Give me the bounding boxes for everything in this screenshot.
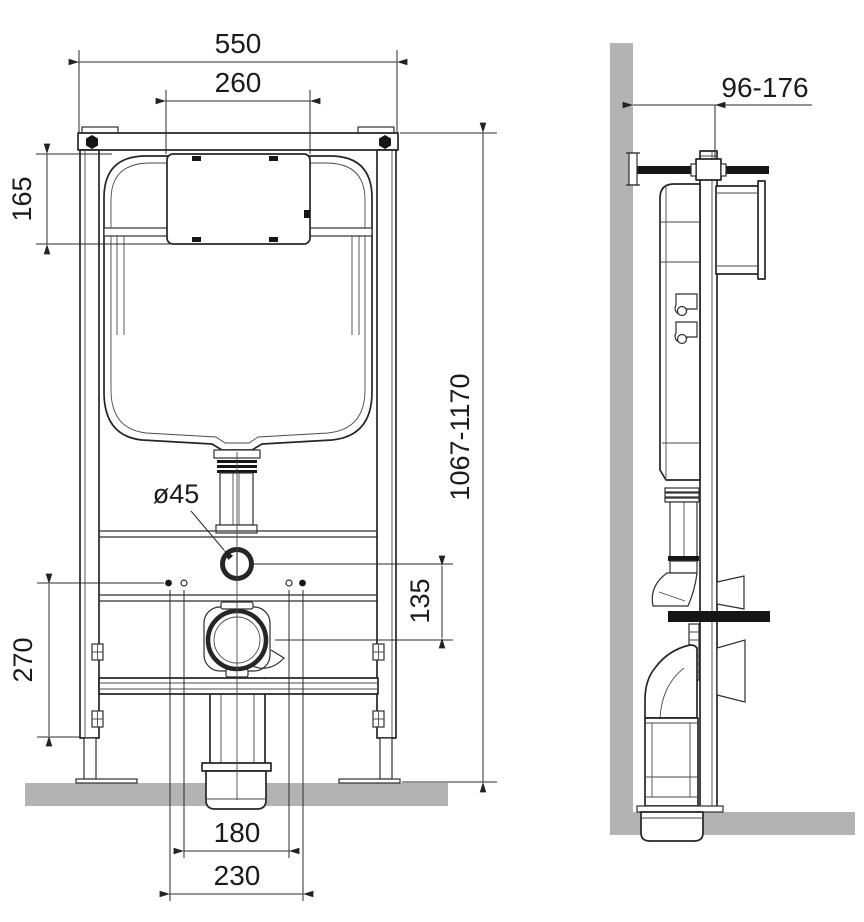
technical-drawing-page: 550 260 165 1067-1170 ø45 135: [0, 0, 864, 922]
dim-access-width-label: 260: [215, 67, 262, 98]
rod-coupler: [696, 159, 721, 180]
clip-icon: [269, 237, 278, 242]
drain-flange: [204, 602, 284, 677]
foot-plate-side: [637, 806, 723, 812]
dim-supply-hole: ø45: [153, 479, 224, 550]
dim-fixing-outer-label: 230: [214, 860, 261, 891]
drain-socket: [202, 763, 271, 809]
front-view: [25, 127, 448, 809]
left-leg: [84, 738, 96, 779]
access-box: [167, 154, 310, 244]
dim-wall-distance: 96-176: [633, 72, 812, 160]
dim-outlet-offset-label: 135: [405, 578, 435, 623]
right-foot-plate: [339, 779, 400, 783]
dim-supply-hole-label: ø45: [153, 479, 200, 509]
clip-icon: [304, 210, 310, 218]
dim-overall-width-label: 550: [215, 28, 262, 59]
upper-crossbar-left: [104, 228, 167, 236]
dim-access-height-label: 165: [7, 176, 37, 221]
cistern-side: [660, 184, 700, 480]
top-rail: [78, 127, 398, 150]
upper-elbow: [652, 573, 697, 606]
drain-elbow-side: [645, 645, 698, 806]
rod-coupler-tab: [691, 164, 696, 176]
anchor-plate: [629, 153, 637, 185]
installation-frame-drawing: 550 260 165 1067-1170 ø45 135: [0, 0, 864, 922]
clip-icon: [192, 237, 201, 242]
flush-pipe-side: [652, 488, 699, 606]
dim-height-range: 1067-1170: [400, 133, 497, 782]
pan-fixing-bar: [668, 611, 770, 622]
pan-bracket-upper: [717, 576, 744, 609]
dim-wall-distance-label: 96-176: [721, 72, 808, 103]
crossbar-lower: [99, 678, 378, 694]
dim-lower-span-label: 270: [8, 637, 38, 682]
side-frame-rail: [700, 151, 717, 809]
upper-crossbar-right: [310, 228, 372, 236]
rod-coupler-tab: [721, 164, 726, 176]
pan-bracket-lower: [717, 640, 745, 702]
drain-socket-side: [641, 812, 703, 841]
crossbar-upper: [99, 595, 378, 601]
clip-icon: [192, 156, 201, 161]
dim-fixing-inner-label: 180: [214, 817, 261, 848]
side-view: [610, 43, 855, 841]
dim-outlet-offset: 135: [253, 564, 453, 640]
clip-icon: [269, 156, 278, 161]
access-box-side: [716, 181, 765, 279]
left-foot-plate: [76, 779, 137, 783]
dim-height-range-label: 1067-1170: [445, 373, 475, 500]
right-leg: [380, 738, 392, 779]
